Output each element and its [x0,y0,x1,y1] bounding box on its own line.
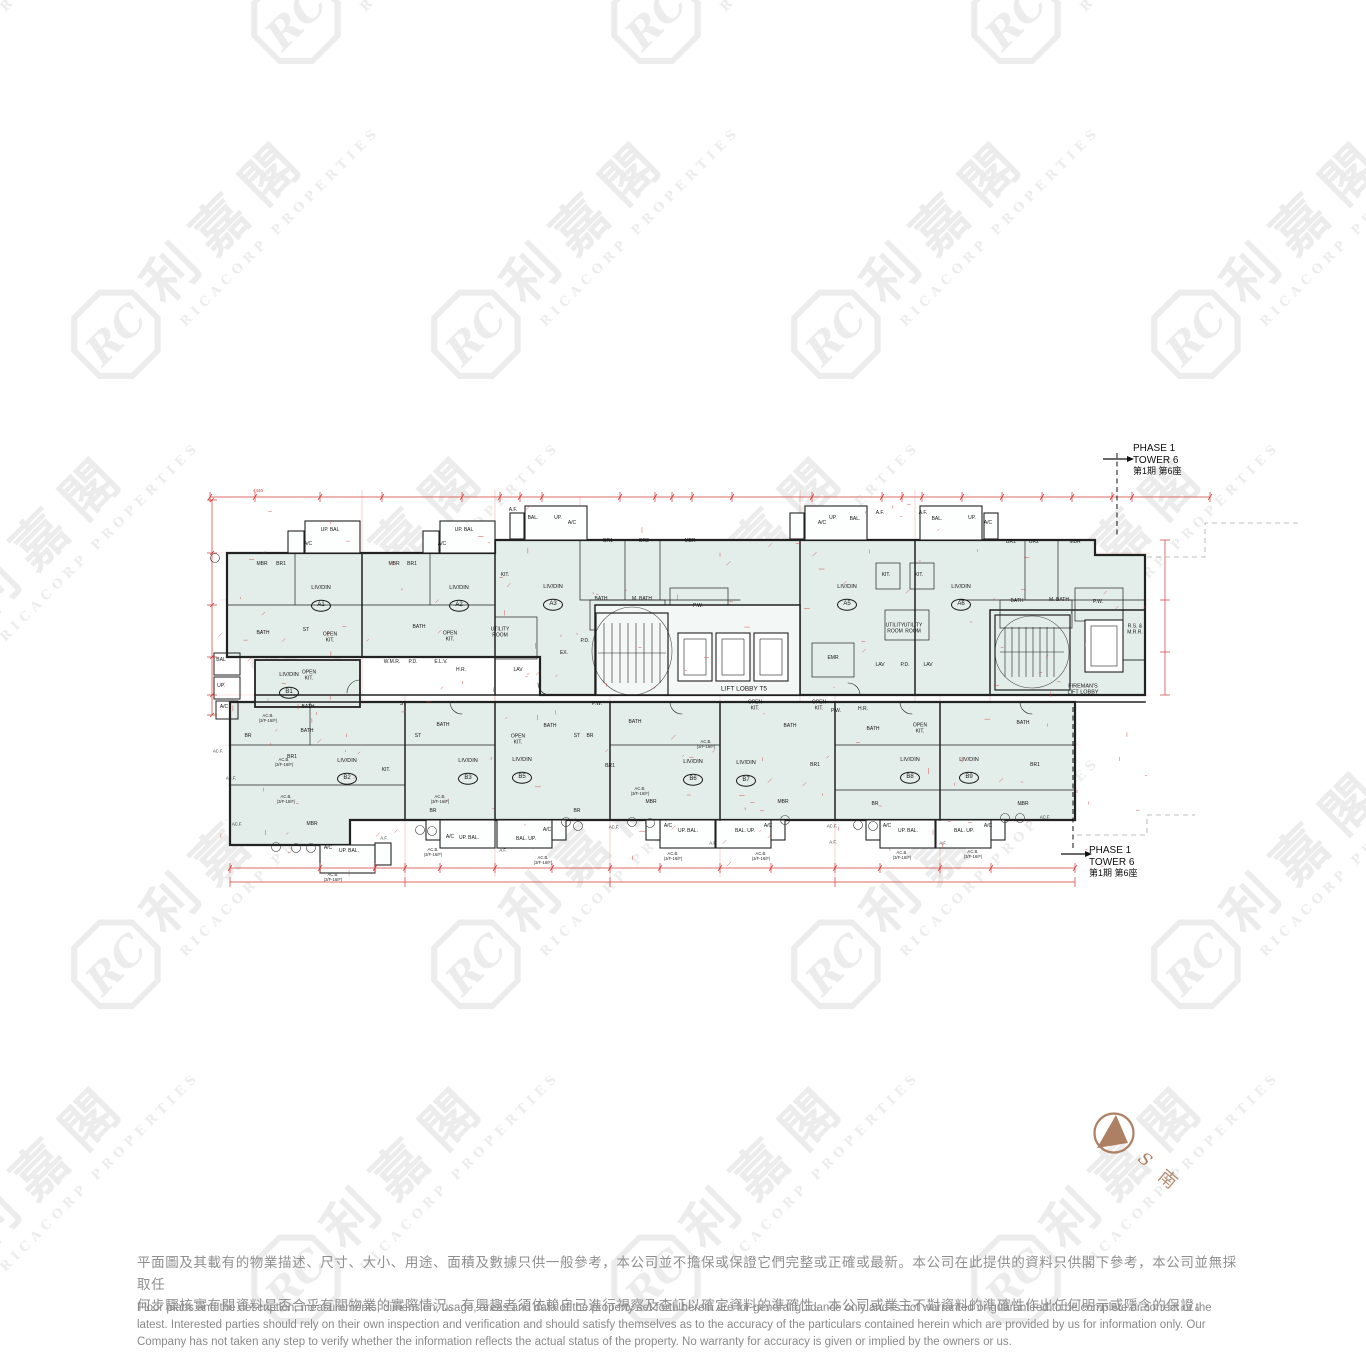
watermark-chinese: 利嘉閣 [0,0,191,3]
page: RC利嘉閣RICACORP PROPERTIESRC利嘉閣RICACORP PR… [0,0,1366,1366]
ricacorp-logo-icon: RC [954,0,1078,81]
phase-marker-top: PHASE 1 TOWER 6 第1期 第6座 [1133,443,1182,478]
phase-line: PHASE 1 [1133,443,1182,455]
svg-text:RC: RC [1155,924,1236,1005]
watermark-tile: RC利嘉閣RICACORP PROPERTIES [411,67,744,400]
disclaimer-line: 平面圖及其載有的物業描述、尺寸、大小、用途、面積及數據只供一般參考，本公司並不擔… [137,1252,1247,1295]
ricacorp-logo-icon: RC [414,272,538,396]
phase-line: TOWER 6 [1133,455,1182,467]
ricacorp-logo-icon: RC [54,272,178,396]
watermark-english: RICACORP PROPERTIES [177,124,383,330]
svg-text:RC: RC [795,294,876,375]
svg-text:RC: RC [255,0,336,60]
watermark-english: RICACORP PROPERTIES [717,0,923,15]
ricacorp-logo-icon: RC [774,272,898,396]
ricacorp-logo-icon: RC [594,0,718,81]
watermark-english: RICACORP PROPERTIES [0,1069,203,1275]
watermark-english: RICACORP PROPERTIES [1077,0,1283,15]
svg-text:RC: RC [615,0,696,60]
watermark-tile: RC利嘉閣RICACORP PROPERTIES [951,0,1284,84]
watermark-chinese: 利嘉閣 [300,0,551,3]
svg-text:RC: RC [1155,294,1236,375]
ricacorp-logo-icon: RC [1134,272,1258,396]
watermark-english: RICACORP PROPERTIES [897,124,1103,330]
watermark-tile: RC利嘉閣RICACORP PROPERTIES [591,0,924,84]
lift-lobby-core [592,605,800,695]
fireman-lift [1085,620,1123,672]
watermark-tile: RC利嘉閣RICACORP PROPERTIES [771,67,1104,400]
svg-text:南: 南 [1154,1166,1181,1194]
phase-line: 第1期 第6座 [1089,868,1138,880]
phase-line: 第1期 第6座 [1133,466,1182,478]
watermark-tile: RC利嘉閣RICACORP PROPERTIES [51,67,384,400]
watermark-english: RICACORP PROPERTIES [357,0,563,15]
svg-text:RC: RC [435,924,516,1005]
watermark-chinese: 利嘉閣 [1020,0,1271,3]
watermark-chinese: 利嘉閣 [120,67,371,318]
ricacorp-logo-icon: RC [414,902,538,1026]
svg-text:RC: RC [795,924,876,1005]
watermark-chinese: 利嘉閣 [660,0,911,3]
floor-plan [200,445,1320,900]
watermark-english: RICACORP PROPERTIES [717,1069,923,1275]
disclaimer-line: Floor plans and the description, measure… [137,1300,1247,1317]
watermark-chinese: 利嘉閣 [0,1012,191,1263]
phase-marker-bottom: PHASE 1 TOWER 6 第1期 第6座 [1089,845,1138,880]
svg-text:RC: RC [75,294,156,375]
watermark-english: RICACORP PROPERTIES [537,124,743,330]
disclaimer-english: Floor plans and the description, measure… [137,1300,1247,1352]
watermark-chinese: 利嘉閣 [660,1012,911,1263]
watermark-english: RICACORP PROPERTIES [357,1069,563,1275]
ricacorp-logo-icon: RC [234,0,358,81]
lift-shafts [678,633,788,681]
watermark-chinese: 利嘉閣 [1200,67,1366,318]
watermark-chinese: 利嘉閣 [0,382,191,633]
watermark-chinese: 利嘉閣 [300,1012,551,1263]
ricacorp-logo-icon: RC [54,902,178,1026]
phase-line: TOWER 6 [1089,857,1138,869]
ricacorp-logo-icon: RC [1134,902,1258,1026]
ricacorp-logo-icon: RC [774,902,898,1026]
disclaimer-line: latest. Interested parties should rely o… [137,1317,1247,1334]
watermark-chinese: 利嘉閣 [480,67,731,318]
svg-text:RC: RC [975,0,1056,60]
watermark-chinese: 利嘉閣 [840,67,1091,318]
disclaimer-line: Company has not taken any step to verify… [137,1334,1247,1351]
compass-icon: S 南 [1085,1106,1215,1206]
svg-text:RC: RC [75,924,156,1005]
phase-line: PHASE 1 [1089,845,1138,857]
watermark-english: RICACORP PROPERTIES [0,439,203,645]
svg-text:S: S [1134,1149,1156,1172]
watermark-english: RICACORP PROPERTIES [1257,124,1366,330]
watermark-tile: RC利嘉閣RICACORP PROPERTIES [231,0,564,84]
svg-text:RC: RC [435,294,516,375]
watermark-tile: RC利嘉閣RICACORP PROPERTIES [0,0,203,84]
watermark-english: RICACORP PROPERTIES [0,0,203,15]
watermark-tile: RC利嘉閣RICACORP PROPERTIES [1131,67,1366,400]
watermark-tile: RC利嘉閣RICACORP PROPERTIES [0,382,203,715]
